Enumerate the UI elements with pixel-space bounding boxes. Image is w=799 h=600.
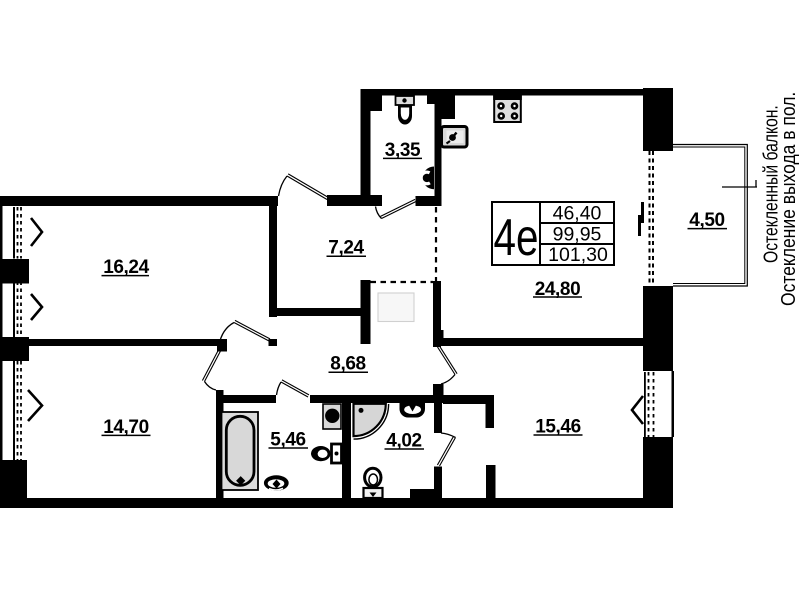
svg-text:101,30: 101,30 [548, 244, 608, 266]
svg-text:46,40: 46,40 [553, 203, 602, 225]
svg-text:8,68: 8,68 [330, 354, 365, 375]
svg-text:7,24: 7,24 [328, 238, 364, 259]
svg-text:Остекление выхода в пол.: Остекление выхода в пол. [777, 92, 799, 306]
svg-text:4е: 4е [494, 209, 539, 267]
svg-text:99,95: 99,95 [553, 224, 602, 246]
